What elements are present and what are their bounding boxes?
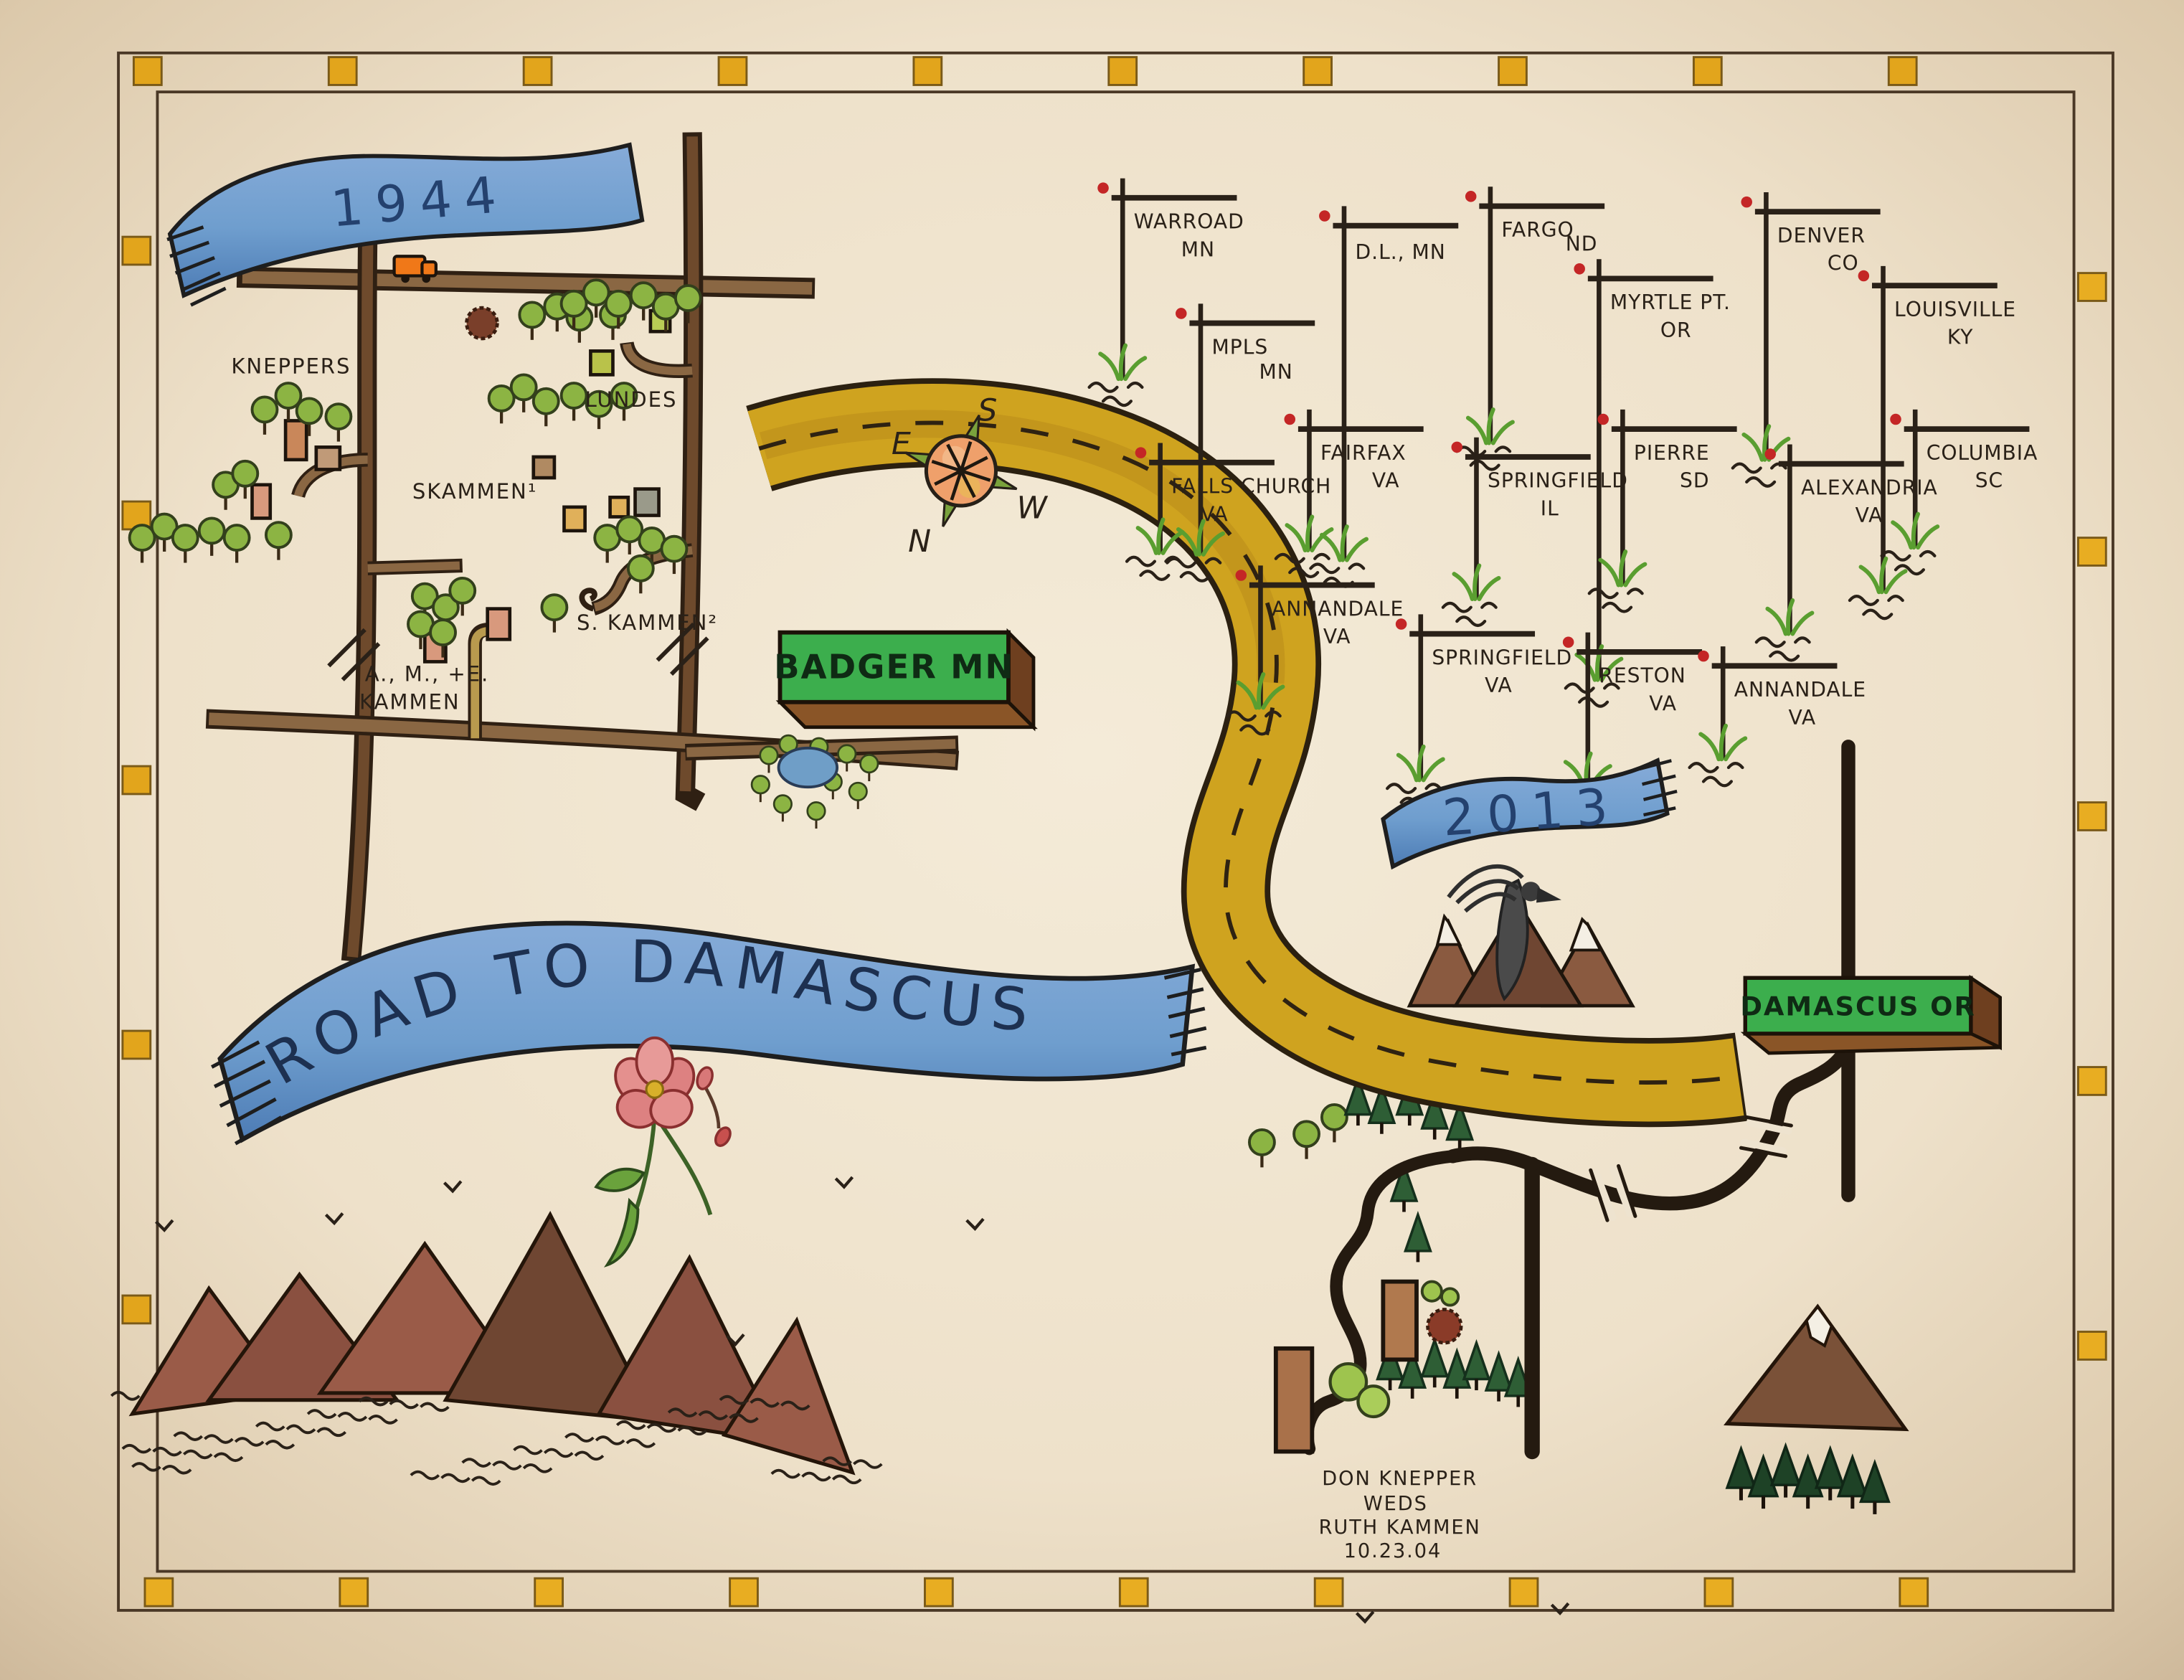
year-end: 2013 <box>1441 778 1622 848</box>
svg-text:ANNANDALE: ANNANDALE <box>1272 597 1404 620</box>
gold-square <box>730 1578 758 1606</box>
gold-square <box>2078 1067 2106 1095</box>
svg-text:ANNANDALE: ANNANDALE <box>1734 678 1866 702</box>
svg-text:MPLS: MPLS <box>1212 335 1269 359</box>
svg-text:COLUMBIA: COLUMBIA <box>1927 441 2038 465</box>
svg-text:VA: VA <box>1649 692 1677 715</box>
svg-text:SPRINGFIELD: SPRINGFIELD <box>1432 646 1572 669</box>
svg-text:PIERRE: PIERRE <box>1634 441 1710 465</box>
svg-text:RUTH KAMMEN: RUTH KAMMEN <box>1319 1516 1481 1539</box>
label-lundes: LUNDES <box>585 387 678 412</box>
svg-text:VA: VA <box>1201 502 1229 526</box>
building <box>564 507 585 531</box>
building <box>590 351 613 374</box>
building <box>285 420 306 459</box>
gold-square <box>1510 1578 1538 1606</box>
gold-square <box>535 1578 563 1606</box>
building <box>610 497 628 516</box>
haystack-icon <box>467 308 498 339</box>
svg-text:SC: SC <box>1975 469 2003 493</box>
building <box>316 447 340 469</box>
svg-text:VA: VA <box>1372 469 1400 493</box>
gold-square <box>328 57 356 85</box>
svg-text:10.23.04: 10.23.04 <box>1344 1540 1442 1562</box>
pond <box>779 748 838 787</box>
gold-square <box>145 1578 173 1606</box>
svg-text:DON KNEPPER: DON KNEPPER <box>1322 1468 1478 1490</box>
svg-text:SD: SD <box>1680 469 1709 493</box>
gold-square <box>340 1578 368 1606</box>
gold-square <box>1888 57 1916 85</box>
road-to-damascus-map: KNEPPERS SKAMMEN¹ LUNDES S. KAMMEN² A., … <box>0 0 2184 1680</box>
gold-square <box>1304 57 1332 85</box>
label-ame-kammen-2: KAMMEN <box>359 689 460 714</box>
svg-text:CO: CO <box>1828 252 1859 275</box>
svg-text:FAIRFAX: FAIRFAX <box>1320 441 1407 465</box>
svg-text:MN: MN <box>1259 360 1293 384</box>
gold-square <box>1109 57 1137 85</box>
label-s-kammen: S. KAMMEN² <box>577 610 718 635</box>
gold-square <box>1120 1578 1148 1606</box>
gold-square <box>524 57 552 85</box>
building <box>534 457 554 478</box>
label-ame-kammen-1: A., M., +E. <box>365 662 489 686</box>
compass-north: N <box>908 524 931 560</box>
svg-text:SPRINGFIELD: SPRINGFIELD <box>1488 469 1628 493</box>
gold-square <box>1900 1578 1928 1606</box>
label-skammen: SKAMMEN¹ <box>412 479 538 504</box>
gold-square <box>1315 1578 1343 1606</box>
svg-text:LOUISVILLE: LOUISVILLE <box>1894 298 2016 321</box>
svg-text:FARGO: FARGO <box>1501 218 1574 242</box>
gold-square <box>123 237 151 265</box>
gold-square <box>719 57 747 85</box>
gold-square <box>1705 1578 1733 1606</box>
gold-square <box>2078 803 2106 831</box>
gold-square <box>1693 57 1721 85</box>
svg-text:VA: VA <box>1485 674 1513 697</box>
gold-square <box>1499 57 1527 85</box>
svg-text:IL: IL <box>1541 497 1559 521</box>
badger-sign-label: BADGER MN <box>774 648 1014 686</box>
compass-west: W <box>1017 490 1049 526</box>
svg-text:OR: OR <box>1660 318 1692 342</box>
building <box>488 609 510 640</box>
gold-square <box>133 57 161 85</box>
gold-square <box>925 1578 952 1606</box>
gold-square <box>2078 1332 2106 1360</box>
svg-text:MN: MN <box>1181 237 1215 261</box>
svg-text:KY: KY <box>1947 326 1974 349</box>
label-kneppers: KNEPPERS <box>231 354 351 378</box>
svg-text:ND: ND <box>1566 232 1598 256</box>
svg-text:VA: VA <box>1788 706 1816 730</box>
svg-text:RESTON: RESTON <box>1599 664 1686 688</box>
svg-text:DENVER: DENVER <box>1777 224 1866 247</box>
building <box>252 485 270 519</box>
gold-square <box>123 766 151 794</box>
svg-text:WARROAD: WARROAD <box>1134 209 1244 233</box>
svg-text:VA: VA <box>1323 625 1351 648</box>
gold-square <box>2078 273 2106 301</box>
compass-east: E <box>892 426 911 462</box>
gold-square <box>123 1031 151 1059</box>
gold-square <box>123 1296 151 1323</box>
gold-square <box>2078 538 2106 566</box>
photo-of-hand-drawn-map: KNEPPERS SKAMMEN¹ LUNDES S. KAMMEN² A., … <box>0 0 2184 1680</box>
badger-mn-sign: BADGER MN <box>774 633 1034 727</box>
building <box>635 489 659 516</box>
svg-text:MYRTLE PT.: MYRTLE PT. <box>1610 291 1731 314</box>
damascus-or-sign: DAMASCUS OR <box>1740 978 2000 1053</box>
svg-text:WEDS: WEDS <box>1363 1493 1428 1515</box>
svg-text:VA: VA <box>1856 504 1883 527</box>
svg-text:D.L., MN: D.L., MN <box>1356 240 1446 264</box>
compass-south: S <box>978 392 997 428</box>
gold-square <box>914 57 942 85</box>
damascus-sign-label: DAMASCUS OR <box>1740 991 1975 1022</box>
